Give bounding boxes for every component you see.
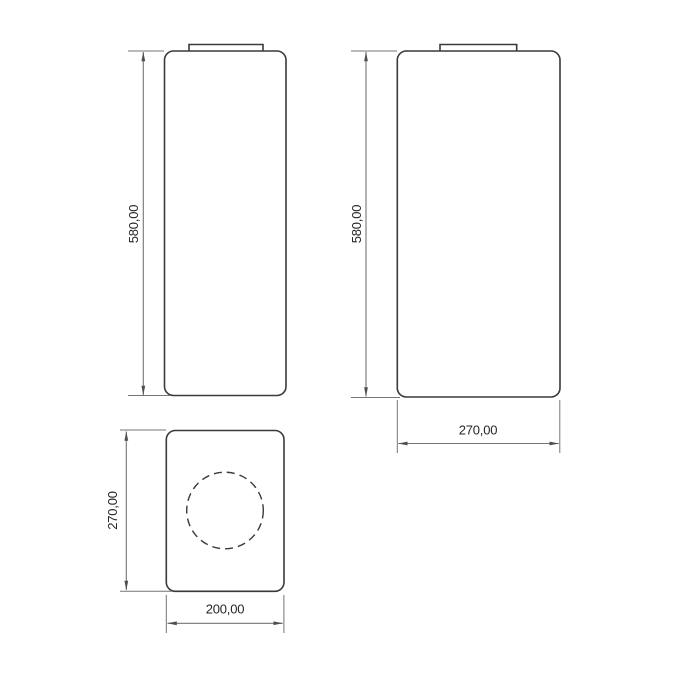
front-view-body-outline [165,51,287,396]
top-height-dimension-label: 270,00 [105,491,120,530]
top-view-body-outline [166,431,284,592]
front-view-top-cap-outline [189,45,263,52]
side-view-height-dimension: 580,00 [349,51,400,398]
drawing-sheet: 580,00 580,00 270,00 270,00 [0,0,683,683]
top-view: 270,00 200,00 [105,430,284,633]
top-view-height-dimension: 270,00 [105,430,172,591]
front-height-dimension-label: 580,00 [126,205,141,244]
side-view-body-outline [397,51,560,397]
side-view-width-dimension: 270,00 [397,400,560,453]
top-width-dimension-label: 200,00 [206,602,245,617]
technical-drawing-canvas: 580,00 580,00 270,00 270,00 [0,0,683,683]
side-height-dimension-label: 580,00 [349,205,364,244]
side-view: 580,00 270,00 [349,45,560,454]
side-view-top-cap-outline [440,45,517,52]
side-width-dimension-label: 270,00 [459,423,498,438]
top-view-width-dimension: 200,00 [166,595,284,633]
front-view-height-dimension: 580,00 [126,51,170,396]
front-view: 580,00 [126,45,286,396]
top-view-hidden-circle [187,472,264,549]
